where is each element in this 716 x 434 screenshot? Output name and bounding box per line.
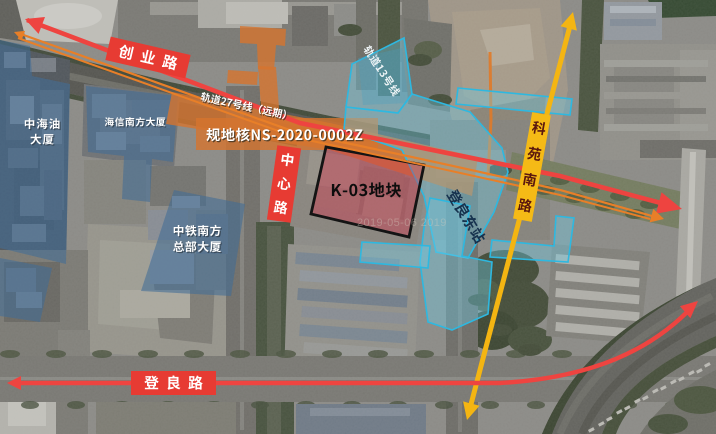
svg-text:2019-05-06 2019: 2019-05-06 2019	[357, 217, 447, 229]
